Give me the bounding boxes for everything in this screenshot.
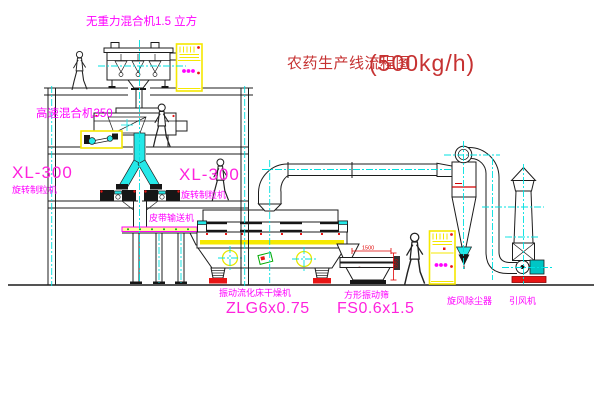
vibrating-screen: 1500 595 — [337, 244, 400, 284]
label-high-speed-mixer: 高速混合机350 — [36, 106, 113, 120]
label-granulator-model-right: XL-300 — [179, 165, 240, 184]
cabinet-knobs — [435, 263, 448, 267]
granulator-left — [98, 184, 138, 201]
dim-screen-height: 595 — [394, 259, 400, 268]
label-granulator-model-left: XL-300 — [12, 163, 73, 182]
control-cabinet-2 — [430, 231, 456, 284]
label-cyclone-name: 旋风除尘器 — [447, 295, 492, 306]
label-dryer-name: 振动流化床干燥机 — [219, 287, 291, 298]
label-granulator-name-right: 旋转制粒机 — [181, 189, 226, 200]
person-top-floor — [72, 51, 87, 89]
label-screen-name: 方形振动筛 — [344, 289, 389, 300]
control-cabinet-1 — [177, 44, 203, 91]
page-title-capacity: (500kg/h) — [369, 50, 475, 76]
label-screen-model: FS0.6x1.5 — [337, 300, 414, 317]
granulator-right — [142, 184, 182, 201]
process-flow-diagram: 1500 595 农药生产线流程图 (500kg/h) — [0, 0, 600, 403]
induced-draft-fan — [512, 243, 546, 283]
label-gravity-mixer: 无重力混合机1.5 立方 — [86, 14, 197, 28]
label-belt-conveyor: 皮带输送机 — [149, 212, 194, 223]
label-granulator-name-left: 旋转制粒机 — [12, 184, 57, 195]
label-dryer-model: ZLG6x0.75 — [226, 300, 310, 317]
dim-screen-length: 1500 — [362, 246, 374, 252]
person-ground — [405, 233, 425, 284]
fluid-bed-dryer — [197, 210, 348, 284]
cabinet-knobs — [182, 69, 195, 73]
label-fan-name: 引风机 — [509, 295, 536, 306]
